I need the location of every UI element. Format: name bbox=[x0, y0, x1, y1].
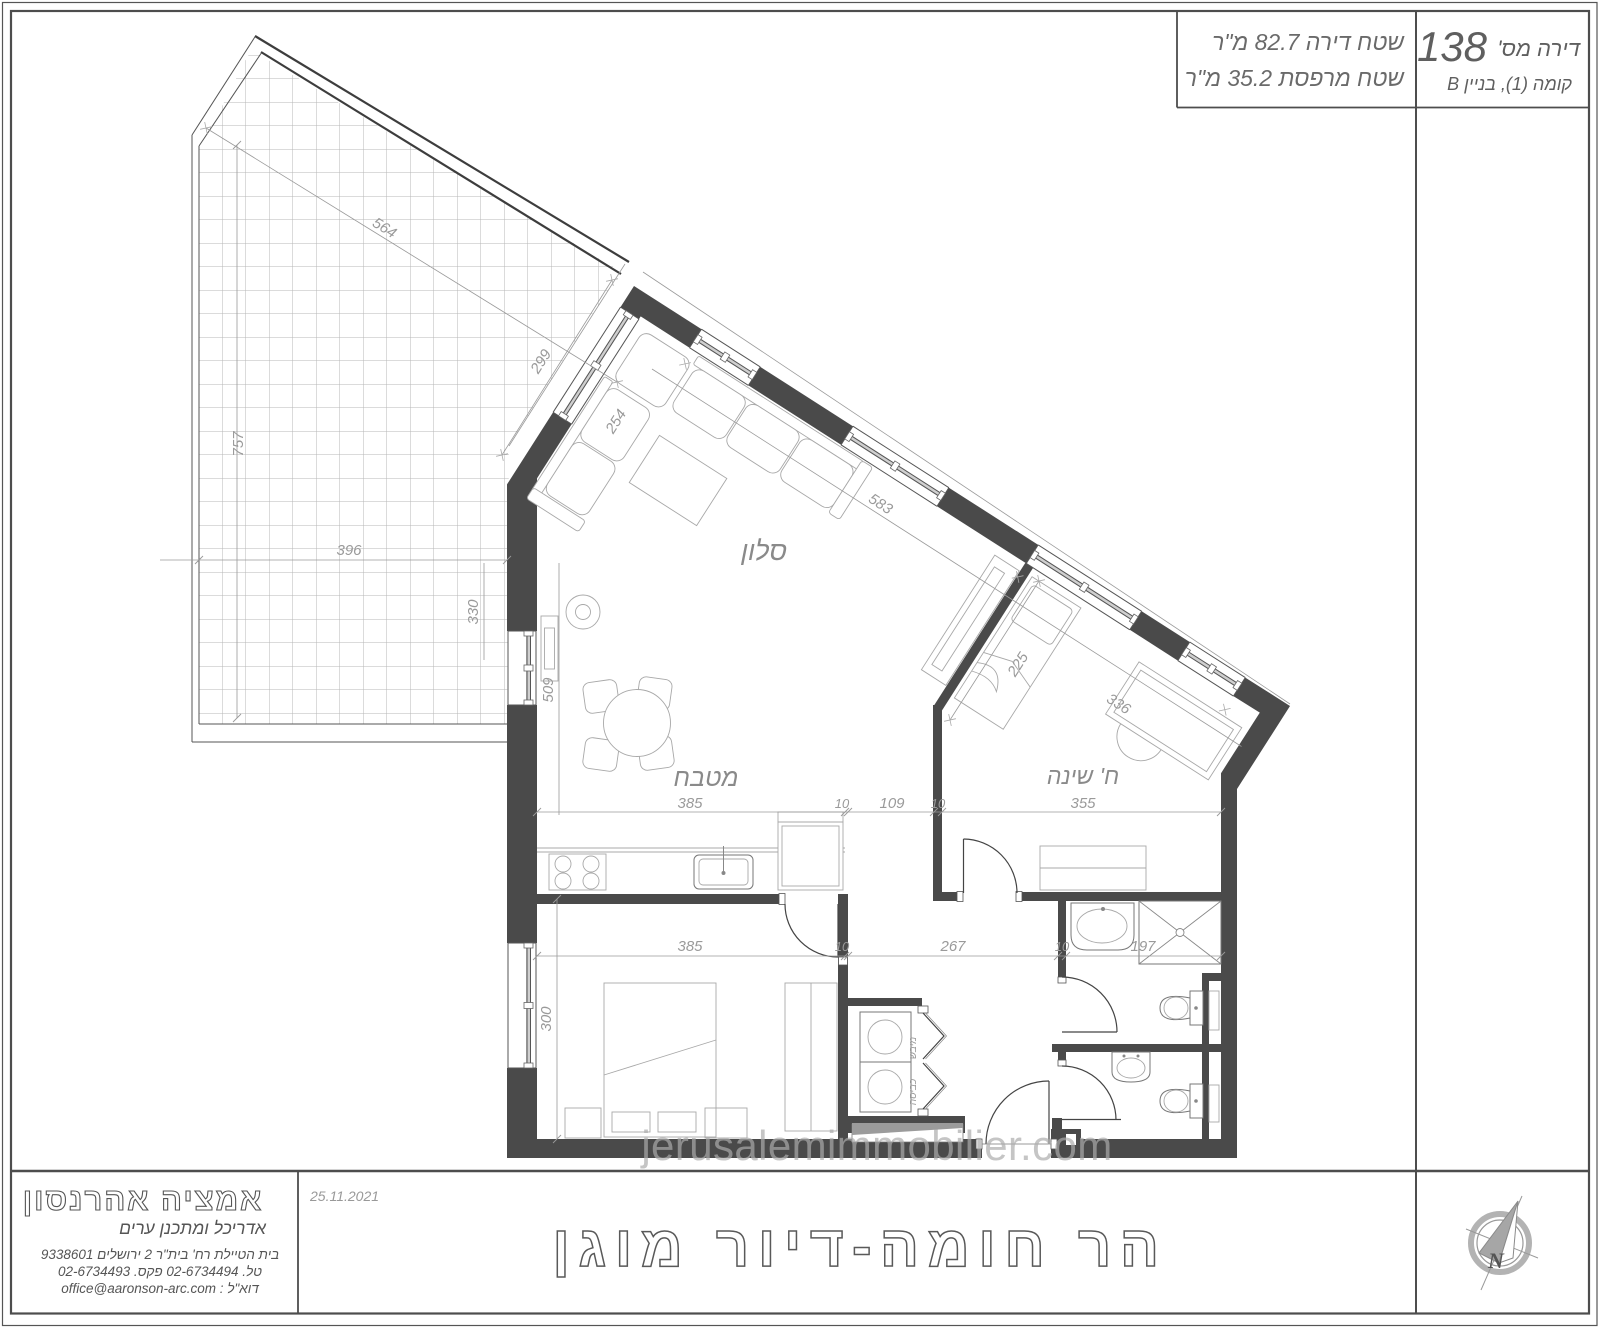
svg-text:197: 197 bbox=[1130, 938, 1156, 955]
svg-text:סלון: סלון bbox=[740, 536, 787, 566]
svg-text:385: 385 bbox=[677, 795, 703, 812]
svg-text:385: 385 bbox=[677, 938, 703, 955]
svg-text:355: 355 bbox=[1070, 795, 1096, 812]
svg-text:טל. 02-6734494 פקס. 02-6734493: טל. 02-6734494 פקס. 02-6734493 bbox=[58, 1264, 262, 1279]
svg-text:בית הטיילת רח' בית"ר 2 ירוש: בית הטיילת רח' בית"ר 2 ירושלים 9338601 bbox=[41, 1247, 279, 1262]
svg-text:300: 300 bbox=[538, 1006, 555, 1032]
svg-text:10: 10 bbox=[1055, 939, 1070, 954]
svg-text:10: 10 bbox=[835, 939, 850, 954]
svg-text:מטבח: מטבח bbox=[674, 764, 739, 792]
svg-text:אדריכל ומתכנן ערים: אדריכל ומתכנן ערים bbox=[119, 1218, 267, 1238]
svg-text:הר חומה-דיור מוגן: הר חומה-דיור מוגן bbox=[552, 1214, 1167, 1279]
svg-text:שטח מרפסת 35.2 מ"ר: שטח מרפסת 35.2 מ"ר bbox=[1185, 65, 1406, 91]
svg-text:10: 10 bbox=[931, 796, 946, 811]
svg-text:כביסה: כביסה bbox=[908, 1079, 919, 1105]
svg-text:509: 509 bbox=[540, 677, 557, 703]
svg-text:אמציה אהרנסון: אמציה אהרנסון bbox=[23, 1182, 264, 1217]
svg-text:25.11.2021: 25.11.2021 bbox=[309, 1188, 379, 1204]
svg-text:jerusalemimmobilier.com: jerusalemimmobilier.com bbox=[639, 1122, 1112, 1169]
svg-text:330: 330 bbox=[465, 599, 482, 625]
svg-text:109: 109 bbox=[879, 795, 905, 812]
svg-text:138: 138 bbox=[1417, 23, 1488, 70]
svg-text:267: 267 bbox=[939, 938, 966, 955]
svg-text:שטח דירה 82.7 מ"ר: שטח דירה 82.7 מ"ר bbox=[1212, 29, 1405, 55]
svg-text:דירה מס': דירה מס' bbox=[1497, 36, 1582, 61]
svg-text:ח' שינה: ח' שינה bbox=[1047, 763, 1119, 789]
svg-text:קומה (1), בניין B: קומה (1), בניין B bbox=[1447, 74, 1572, 94]
svg-text:מיבש: מיבש bbox=[908, 1037, 919, 1059]
svg-text:דוא"ל : office@aaronson-arc.c: דוא"ל : office@aaronson-arc.com bbox=[61, 1281, 259, 1296]
svg-text:757: 757 bbox=[230, 431, 247, 457]
svg-text:N: N bbox=[1487, 1248, 1505, 1273]
svg-text:396: 396 bbox=[336, 542, 362, 559]
